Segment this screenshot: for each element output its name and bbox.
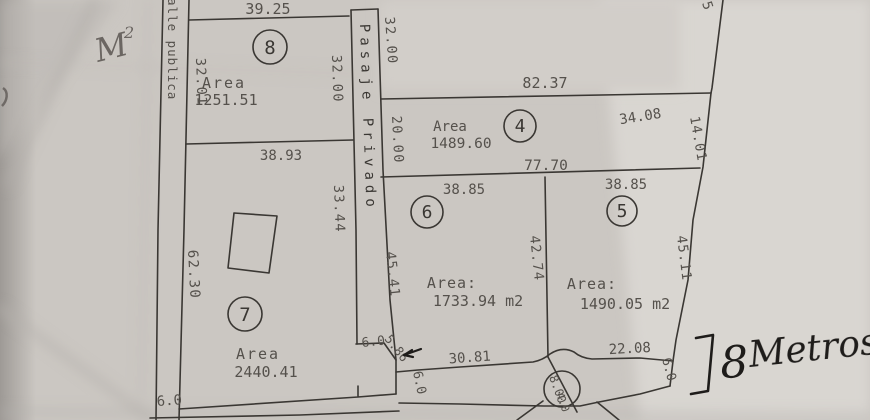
parcel-5-top-dim: 38.85 xyxy=(605,177,647,193)
parcel-6-number: 6 xyxy=(422,202,433,223)
parcel-4-left-dim: 20.00 xyxy=(388,115,406,164)
street-bottom-width-dim: 6.0 xyxy=(156,392,182,410)
road-segment-right-dim: 22.08 xyxy=(608,340,651,358)
parcel-7-number: 7 xyxy=(239,304,250,326)
parcel-7-chamfer-dim-a: 6.0 xyxy=(361,334,386,351)
strip-right-top-dim: 32.00 xyxy=(381,16,400,65)
parcel-4-number: 4 xyxy=(515,116,526,137)
parcel-8-bottom-dim: 38.93 xyxy=(260,148,302,164)
parcel-8-right-dim: 32.00 xyxy=(328,55,346,104)
parcel-7-right-dim: 33.44 xyxy=(330,185,348,234)
parcel-7-area-label: Area xyxy=(236,345,280,363)
road-segment-left-dim: 30.81 xyxy=(448,349,491,368)
parcel-6-area-label: Area: xyxy=(427,274,477,292)
parcel-6-top-dim: 38.85 xyxy=(443,182,485,198)
parcel-4-bottom-dim: 77.70 xyxy=(524,158,568,174)
handwritten-width-number: 8 xyxy=(719,337,750,389)
parcel-4-top-dim: 82.37 xyxy=(522,74,567,92)
parcel-6-area-value: 1733.94 m2 xyxy=(433,292,523,310)
parcel-5-number: 5 xyxy=(617,201,628,222)
parcel-8-area-label: Area xyxy=(202,74,246,92)
handwritten-m2-exponent: 2 xyxy=(123,23,134,42)
parcel-4-area-value: 1489.60 xyxy=(430,136,491,152)
parcel-7-area-value: 2440.41 xyxy=(234,363,297,381)
parcel-7-left-dim: 62.30 xyxy=(184,249,203,299)
parcel-8-number: 8 xyxy=(264,37,275,59)
street-left-label: alle publica xyxy=(165,0,180,100)
parcel-5-area-label: Area: xyxy=(567,275,617,293)
photographed-survey-plat: alle publica Pasaje Privado 39.25 32.01 … xyxy=(0,0,870,420)
pasaje-top-cap xyxy=(351,9,378,10)
plat-drawing: alle publica Pasaje Privado 39.25 32.01 … xyxy=(0,0,870,420)
parcel-4-area-label: Area xyxy=(433,119,467,135)
parcel-8-area-value: 1251.51 xyxy=(194,91,257,109)
parcel-8-top-dim: 39.25 xyxy=(245,0,290,18)
parcel-5-area-value: 1490.05 m2 xyxy=(580,295,670,313)
